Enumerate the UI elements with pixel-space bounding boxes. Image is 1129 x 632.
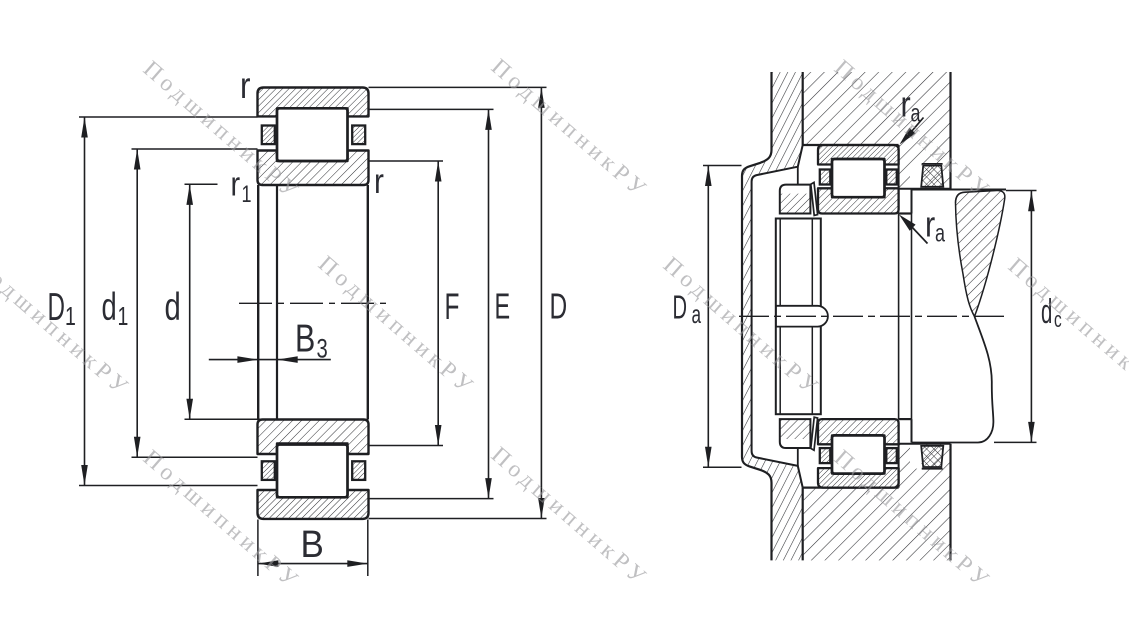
svg-text:1: 1: [242, 182, 252, 208]
svg-text:D: D: [550, 286, 568, 327]
svg-text:r: r: [231, 164, 241, 203]
svg-text:a: a: [935, 219, 946, 248]
svg-text:3: 3: [317, 334, 328, 365]
svg-text:d: d: [102, 286, 117, 329]
svg-text:B: B: [295, 317, 315, 360]
svg-text:r: r: [240, 66, 250, 107]
svg-text:r: r: [925, 205, 935, 245]
svg-text:r: r: [374, 162, 384, 201]
svg-text:d: d: [165, 286, 181, 329]
svg-text:B: B: [301, 523, 324, 566]
svg-text:1: 1: [118, 301, 129, 330]
svg-text:F: F: [445, 286, 460, 327]
svg-text:E: E: [495, 288, 511, 327]
